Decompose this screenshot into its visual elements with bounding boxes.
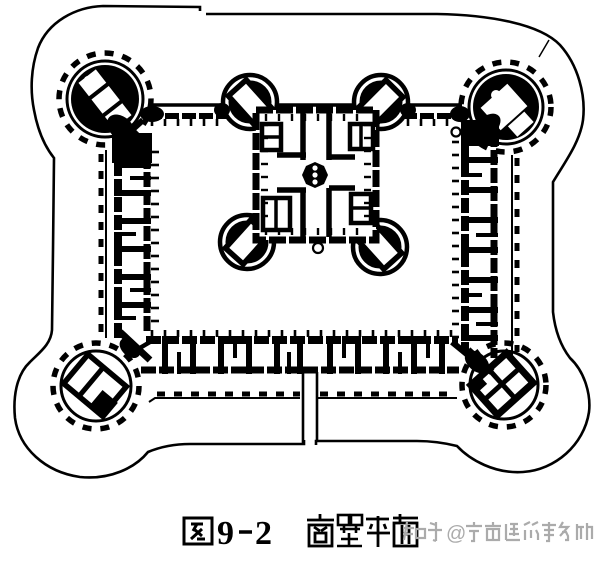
svg-text:@: @	[446, 523, 466, 545]
svg-text:2: 2	[255, 515, 272, 552]
svg-text:9: 9	[217, 515, 234, 552]
